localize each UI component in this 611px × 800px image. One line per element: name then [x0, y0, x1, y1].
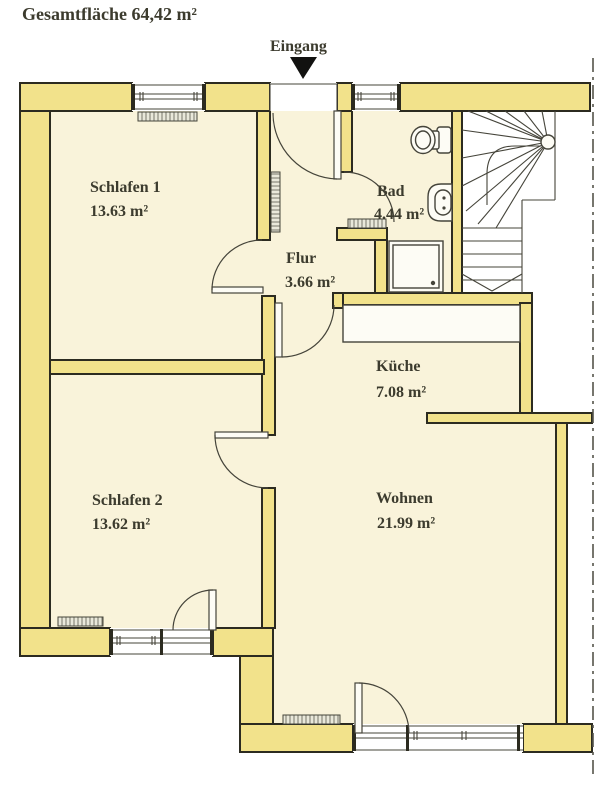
shower-icon: [389, 241, 443, 292]
room-label-schlafen2: Schlafen 2: [92, 492, 163, 509]
room-label-flur: Flur: [286, 250, 316, 267]
radiator-wohnen-icon: [283, 715, 340, 724]
floorplan-svg: Gesamtfläche 64,42 m² Eingang Schlafen 1…: [0, 0, 611, 800]
floorplan-page: Gesamtfläche 64,42 m² Eingang Schlafen 1…: [0, 0, 611, 800]
wall-bad-south: [337, 228, 387, 240]
room-label-bad: Bad: [377, 183, 405, 200]
wall-schlafen2-south-a: [20, 628, 110, 656]
room-label-kueche: Küche: [376, 358, 420, 375]
entrance-opening: [270, 83, 337, 111]
washbasin-icon: [428, 184, 452, 221]
wall-schlafen-divider: [50, 360, 264, 374]
room-area-bad: 4.44 m²: [374, 206, 424, 223]
page-title: Gesamtfläche 64,42 m²: [22, 4, 197, 24]
radiator-schlafen2-icon: [58, 617, 103, 626]
wall-schlafen2-south-b: [213, 628, 273, 656]
window-bad: [352, 83, 400, 111]
wall-kueche-north: [333, 293, 532, 305]
entrance-label: Eingang: [270, 38, 327, 55]
wall-top-b: [205, 83, 270, 111]
wall-left-exterior: [20, 83, 50, 656]
room-label-schlafen1: Schlafen 1: [90, 179, 161, 196]
room-area-kueche: 7.08 m²: [376, 384, 426, 401]
window-wohnen: [353, 724, 523, 752]
window-schlafen2: [110, 628, 213, 656]
wall-bad-west: [340, 111, 352, 172]
wall-flur-west-upper: [257, 111, 270, 240]
entrance-arrow-icon: [290, 57, 317, 79]
wall-stairwell-west: [452, 111, 462, 293]
wall-kueche-east: [520, 303, 532, 413]
wall-schlafen2-east: [262, 488, 275, 628]
wall-top-a: [20, 83, 132, 111]
radiator-schlafen1-icon: [138, 112, 197, 121]
room-area-flur: 3.66 m²: [285, 274, 335, 291]
wall-wohnen-south-a: [240, 724, 353, 752]
kitchen-counter-icon: [343, 305, 520, 342]
room-label-wohnen: Wohnen: [376, 490, 433, 507]
room-area-schlafen1: 13.63 m²: [90, 203, 148, 220]
room-area-wohnen: 21.99 m²: [377, 515, 435, 532]
toilet-icon: [411, 127, 451, 154]
wall-shower-west: [375, 240, 387, 295]
wall-kueche-south: [427, 413, 592, 423]
wall-wohnen-south-b: [523, 724, 592, 752]
radiator-flur-icon: [271, 172, 280, 232]
wall-wohnen-east: [556, 423, 567, 724]
window-schlafen1: [132, 83, 205, 111]
room-area-schlafen2: 13.62 m²: [92, 516, 150, 533]
wall-top-c: [400, 83, 590, 111]
wall-top-entrance-jamb: [337, 83, 352, 111]
